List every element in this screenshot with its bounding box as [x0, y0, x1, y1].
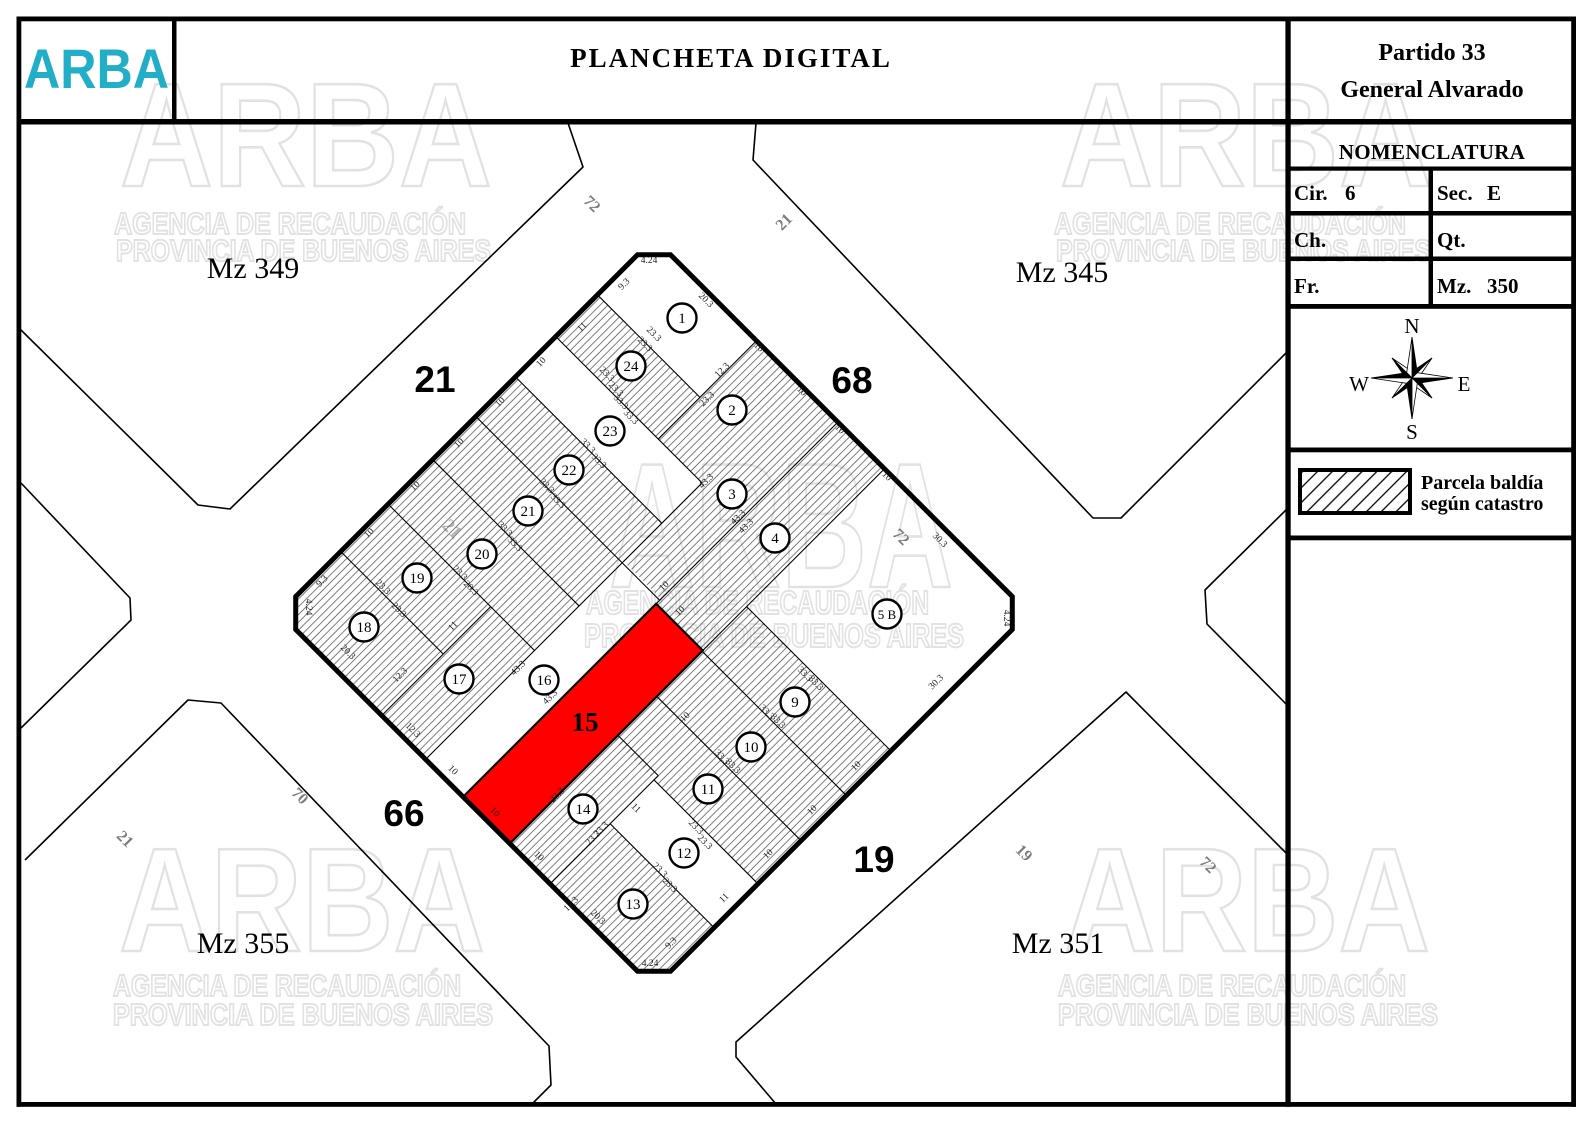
svg-text:Partido 33: Partido 33: [1378, 40, 1485, 66]
svg-text:20: 20: [475, 547, 490, 563]
svg-text:10: 10: [446, 764, 460, 778]
svg-text:15: 15: [572, 707, 599, 737]
svg-text:11: 11: [718, 892, 732, 906]
svg-text:ARBA: ARBA: [1064, 818, 1430, 983]
svg-text:Sec.: Sec.: [1437, 181, 1473, 205]
svg-text:5 B: 5 B: [878, 607, 897, 622]
svg-text:PROVINCIA DE BUENOS AIRES: PROVINCIA DE BUENOS AIRES: [116, 233, 491, 268]
svg-text:30.3: 30.3: [927, 673, 946, 692]
svg-text:1: 1: [678, 311, 686, 327]
svg-text:22: 22: [562, 463, 577, 479]
svg-text:PLANCHETA DIGITAL: PLANCHETA DIGITAL: [570, 43, 892, 73]
svg-text:13: 13: [626, 897, 641, 913]
svg-text:70: 70: [288, 785, 311, 808]
svg-text:N: N: [1404, 314, 1419, 338]
svg-text:Qt.: Qt.: [1437, 228, 1466, 252]
svg-text:E: E: [1458, 372, 1471, 396]
svg-text:21: 21: [521, 504, 536, 520]
svg-text:6: 6: [1345, 181, 1356, 205]
svg-text:NOMENCLATURA: NOMENCLATURA: [1339, 140, 1526, 164]
svg-text:21: 21: [414, 359, 455, 400]
svg-text:18: 18: [357, 620, 372, 636]
svg-text:4.24: 4.24: [303, 599, 313, 616]
svg-text:Fr.: Fr.: [1294, 274, 1319, 298]
svg-text:Mz 355: Mz 355: [197, 927, 290, 960]
svg-text:ARBA: ARBA: [119, 818, 485, 983]
svg-text:Parcela baldía: Parcela baldía: [1421, 472, 1543, 494]
svg-text:Mz 349: Mz 349: [207, 252, 300, 285]
svg-text:PROVINCIA DE BUENOS AIRES: PROVINCIA DE BUENOS AIRES: [1056, 233, 1431, 268]
svg-text:PROVINCIA DE BUENOS AIRES: PROVINCIA DE BUENOS AIRES: [1058, 997, 1438, 1032]
svg-text:Ch.: Ch.: [1294, 228, 1326, 252]
svg-text:ARBA: ARBA: [24, 37, 169, 100]
svg-text:4.24: 4.24: [1001, 610, 1011, 627]
svg-text:9.3: 9.3: [617, 277, 633, 293]
svg-text:PROVINCIA DE BUENOS AIRES: PROVINCIA DE BUENOS AIRES: [113, 997, 493, 1032]
svg-text:4: 4: [771, 531, 779, 547]
svg-text:68: 68: [831, 360, 872, 401]
svg-text:4.24: 4.24: [642, 959, 659, 969]
svg-text:19: 19: [1012, 842, 1035, 865]
svg-text:19: 19: [853, 839, 894, 880]
svg-text:17: 17: [452, 672, 468, 688]
svg-text:14: 14: [576, 802, 592, 818]
svg-text:350: 350: [1487, 274, 1519, 298]
svg-text:Cir.: Cir.: [1294, 181, 1328, 205]
svg-text:24: 24: [624, 359, 640, 375]
svg-text:W: W: [1349, 372, 1369, 396]
svg-text:10: 10: [744, 740, 759, 756]
svg-text:Mz.: Mz.: [1437, 274, 1471, 298]
svg-text:Mz 345: Mz 345: [1016, 256, 1109, 289]
svg-text:según catastro: según catastro: [1421, 493, 1543, 515]
svg-text:E: E: [1487, 181, 1501, 205]
svg-text:19: 19: [410, 571, 425, 587]
svg-text:12: 12: [677, 846, 692, 862]
svg-text:9: 9: [791, 695, 799, 711]
svg-text:16: 16: [537, 673, 553, 689]
svg-text:72: 72: [580, 193, 603, 216]
svg-text:21: 21: [773, 211, 796, 234]
svg-text:General Alvarado: General Alvarado: [1340, 77, 1523, 103]
svg-text:66: 66: [383, 793, 424, 834]
svg-text:4.24: 4.24: [641, 256, 658, 266]
svg-text:Mz 351: Mz 351: [1012, 927, 1105, 960]
svg-text:2: 2: [728, 403, 736, 419]
svg-text:3: 3: [728, 487, 736, 503]
svg-text:11: 11: [701, 782, 715, 798]
svg-text:23: 23: [603, 424, 618, 440]
svg-text:S: S: [1406, 420, 1418, 444]
